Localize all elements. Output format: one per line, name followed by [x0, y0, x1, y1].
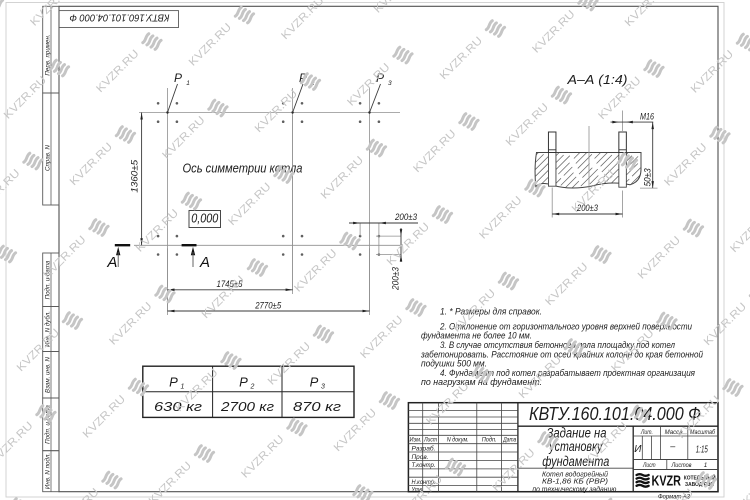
svg-text:А: А — [106, 254, 117, 271]
svg-text:N докум.: N докум. — [447, 436, 469, 444]
svg-text:Лит.: Лит. — [640, 429, 653, 436]
svg-text:Изм.: Изм. — [410, 437, 422, 444]
svg-text:Инв. N подл.: Инв. N подл. — [44, 453, 51, 489]
svg-text:КВТУ.160.101.04.000 Ф: КВТУ.160.101.04.000 Ф — [70, 12, 170, 24]
svg-text:2700 кг: 2700 кг — [220, 399, 275, 414]
svg-text:И: И — [634, 444, 642, 455]
svg-text:1: 1 — [704, 462, 708, 469]
svg-text:по техническому заданию: по техническому заданию — [532, 486, 617, 494]
svg-text:Котел водогрейный: Котел водогрейный — [542, 470, 608, 478]
svg-text:А: А — [199, 254, 210, 271]
svg-text:М16: М16 — [640, 111, 654, 122]
svg-text:1. * Размеры для справок.: 1. * Размеры для справок. — [440, 307, 542, 317]
svg-text:–: – — [669, 441, 676, 451]
svg-text:Лист: Лист — [642, 462, 655, 469]
svg-text:Дата: Дата — [503, 437, 517, 444]
svg-text:Р: Р — [169, 375, 178, 390]
svg-text:0,000: 0,000 — [191, 212, 218, 226]
svg-text:КВТУ.160.101.04.000 Ф: КВТУ.160.101.04.000 Ф — [529, 403, 701, 424]
svg-text:Разраб.: Разраб. — [412, 444, 436, 452]
svg-text:1:15: 1:15 — [696, 444, 708, 455]
svg-text:Подп.: Подп. — [482, 436, 497, 444]
svg-text:Р: Р — [174, 71, 182, 85]
svg-text:200±3: 200±3 — [394, 212, 417, 223]
svg-text:Р: Р — [310, 375, 319, 390]
svg-text:KVZR: KVZR — [652, 474, 682, 490]
svg-text:Р: Р — [239, 375, 248, 390]
svg-text:фундамента не более 10 мм.: фундамента не более 10 мм. — [421, 331, 532, 341]
svg-text:200±3: 200±3 — [390, 266, 401, 290]
svg-text:А–А (1:4): А–А (1:4) — [566, 72, 627, 87]
svg-text:1: 1 — [181, 384, 185, 391]
svg-text:50±3: 50±3 — [642, 168, 653, 187]
svg-text:КВ-1,86 КБ (РВР): КВ-1,86 КБ (РВР) — [542, 478, 608, 485]
svg-text:Пров.: Пров. — [412, 454, 429, 461]
svg-text:2770±5: 2770±5 — [254, 301, 281, 312]
svg-text:2: 2 — [250, 384, 255, 391]
svg-text:1: 1 — [186, 80, 190, 87]
svg-text:3: 3 — [321, 384, 325, 391]
svg-text:Листов: Листов — [671, 462, 692, 469]
svg-text:870 кг: 870 кг — [293, 399, 342, 414]
svg-text:3: 3 — [388, 80, 392, 87]
svg-text:1360±5: 1360±5 — [129, 159, 140, 193]
svg-text:Т.контр.: Т.контр. — [412, 462, 436, 469]
svg-text:Справ. N: Справ. N — [44, 145, 51, 171]
svg-text:Лист: Лист — [423, 437, 437, 444]
svg-text:Взам. инв. N: Взам. инв. N — [44, 356, 51, 393]
